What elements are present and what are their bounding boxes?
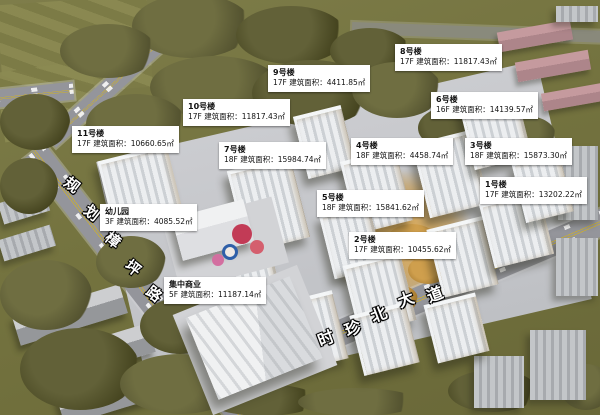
building-label-name: 11号楼 xyxy=(77,128,174,139)
existing-building xyxy=(474,356,524,408)
building-label-name: 10号楼 xyxy=(188,101,285,112)
building-label-8: 8号楼 17F 建筑面积：11817.43㎡ xyxy=(395,44,502,71)
tree-cluster xyxy=(20,328,140,410)
aerial-site-plan: 规 划 樟 坪 路 时 珍 北 大 道 8号楼 17F 建筑面积：11817.4… xyxy=(0,0,600,415)
building-label-name: 4号楼 xyxy=(356,140,448,151)
building-label-detail: 17F 建筑面积：13202.22㎡ xyxy=(485,190,582,201)
building-label-name: 8号楼 xyxy=(400,46,497,57)
existing-building xyxy=(556,6,598,22)
building-label-2: 2号楼 17F 建筑面积：10455.62㎡ xyxy=(349,232,456,259)
tree-cluster xyxy=(236,6,346,64)
playground-circle xyxy=(212,254,224,266)
building-label-detail: 16F 建筑面积：14139.57㎡ xyxy=(436,105,533,116)
tree-cluster xyxy=(0,260,92,330)
building-label-3: 3号楼 18F 建筑面积：15873.30㎡ xyxy=(465,138,572,165)
building-label-detail: 18F 建筑面积：15984.74㎡ xyxy=(224,155,321,166)
building-label-detail: 17F 建筑面积：10660.65㎡ xyxy=(77,139,174,150)
building-label-detail: 5F 建筑面积：11187.14㎡ xyxy=(169,290,261,301)
existing-building-pink-roof xyxy=(497,20,573,53)
tree-cluster xyxy=(298,388,418,415)
building-label-name: 2号楼 xyxy=(354,234,451,245)
building-label-5: 5号楼 18F 建筑面积：15841.62㎡ xyxy=(317,190,424,217)
building-label-6: 6号楼 16F 建筑面积：14139.57㎡ xyxy=(431,92,538,119)
building-label-detail: 18F 建筑面积：4458.74㎡ xyxy=(356,151,448,162)
existing-building-pink-roof xyxy=(541,83,600,112)
building-label-1: 1号楼 17F 建筑面积：13202.22㎡ xyxy=(480,177,587,204)
building-label-detail: 17F 建筑面积：4411.85㎡ xyxy=(273,78,365,89)
building-label-10: 10号楼 17F 建筑面积：11817.43㎡ xyxy=(183,99,290,126)
building-label-name: 3号楼 xyxy=(470,140,567,151)
building-label-7: 7号楼 18F 建筑面积：15984.74㎡ xyxy=(219,142,326,169)
building-label-name: 7号楼 xyxy=(224,144,321,155)
building-label-detail: 17F 建筑面积：11817.43㎡ xyxy=(400,57,497,68)
building-label-kindergarten: 幼儿园 3F 建筑面积：4085.52㎡ xyxy=(100,204,197,231)
playground-circle xyxy=(232,224,252,244)
building-label-name: 9号楼 xyxy=(273,67,365,78)
building-label-name: 5号楼 xyxy=(322,192,419,203)
building-label-name: 1号楼 xyxy=(485,179,582,190)
building-label-detail: 17F 建筑面积：10455.62㎡ xyxy=(354,245,451,256)
small-building xyxy=(0,225,56,262)
existing-building xyxy=(530,330,586,400)
building-label-detail: 18F 建筑面积：15841.62㎡ xyxy=(322,203,419,214)
building-label-name: 幼儿园 xyxy=(105,206,192,217)
building-label-commercial: 集中商业 5F 建筑面积：11187.14㎡ xyxy=(164,277,266,304)
building-label-4: 4号楼 18F 建筑面积：4458.74㎡ xyxy=(351,138,453,165)
existing-building xyxy=(556,238,598,296)
tree-cluster xyxy=(60,24,156,78)
tree-cluster xyxy=(0,94,70,150)
playground-circle xyxy=(222,244,238,260)
building-label-name: 6号楼 xyxy=(436,94,533,105)
building-label-9: 9号楼 17F 建筑面积：4411.85㎡ xyxy=(268,65,370,92)
building-label-detail: 3F 建筑面积：4085.52㎡ xyxy=(105,217,192,228)
building-label-detail: 17F 建筑面积：11817.43㎡ xyxy=(188,112,285,123)
playground-circle xyxy=(250,240,264,254)
building-label-name: 集中商业 xyxy=(169,279,261,290)
building-label-detail: 18F 建筑面积：15873.30㎡ xyxy=(470,151,567,162)
building-label-11: 11号楼 17F 建筑面积：10660.65㎡ xyxy=(72,126,179,153)
tree-cluster xyxy=(0,158,58,214)
existing-building-pink-roof xyxy=(515,50,591,83)
